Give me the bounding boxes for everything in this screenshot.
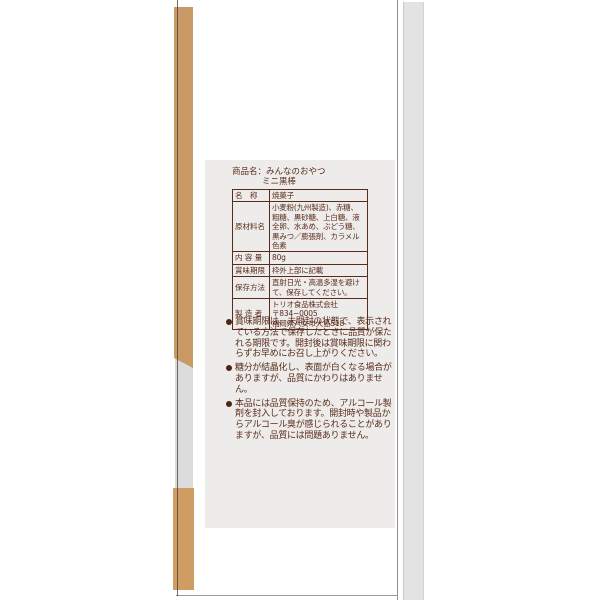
row-value: 焼菓子	[270, 190, 367, 201]
row-label: 内 容 量	[233, 252, 270, 263]
package-bottom-edge-line	[176, 595, 398, 596]
spec-table: 名 称 焼菓子 原材料名 小麦粉(九州製造)、赤糖、粗糖、黒砂糖、上白糖、液全卵…	[232, 189, 368, 330]
row-label: 保存方法	[233, 277, 270, 298]
product-name-line2: ミニ黒棒	[262, 177, 326, 187]
product-name-label: 商品名：	[232, 167, 266, 177]
row-value: 80g	[270, 252, 367, 263]
package-right-edge-line	[397, 0, 398, 600]
package-right-gusset-strip	[403, 2, 424, 600]
note-item-crystallization: 糖分が結晶化し、表面が白くなる場合がありますが、品質にかわりはありません。	[226, 363, 394, 395]
row-value: 枠外上部に記載	[270, 265, 367, 276]
back-label-panel: 商品名：みんなのおやつ ミニ黒棒 名 称 焼菓子 原材料名 小麦粉(九州製造)、…	[205, 160, 395, 528]
product-photo: 商品名：みんなのおやつ ミニ黒棒 名 称 焼菓子 原材料名 小麦粉(九州製造)、…	[0, 0, 600, 600]
package-left-edge-line	[177, 0, 178, 596]
note-item-alcohol: 本品には品質保持のため、アルコール製剤を封入しております。開封時や製品からアルコ…	[226, 399, 394, 442]
note-text: 糖分が結晶化し、表面が白くなる場合がありますが、品質にかわりはありません。	[235, 363, 394, 395]
table-row-storage: 保存方法 直射日光・高温多湿を避けて、保存してください。	[233, 276, 367, 298]
notes-list: 賞味期限は、未開封の状態で、表示されている方法で保存したときに品質が保たれる期限…	[226, 317, 394, 442]
note-text: 賞味期限は、未開封の状態で、表示されている方法で保存したときに品質が保たれる期限…	[235, 317, 394, 360]
row-label: 名 称	[233, 190, 270, 201]
product-name-line1: みんなのおやつ	[266, 167, 326, 177]
note-item-best-before: 賞味期限は、未開封の状態で、表示されている方法で保存したときに品質が保たれる期限…	[226, 317, 394, 360]
row-label: 賞味期限	[233, 265, 270, 276]
bullet-icon	[226, 401, 232, 407]
table-row-ingredients: 原材料名 小麦粉(九州製造)、赤糖、粗糖、黒砂糖、上白糖、液全卵、水あめ、ぶどう…	[233, 201, 367, 251]
row-label: 原材料名	[233, 202, 270, 251]
row-value: 直射日光・高温多湿を避けて、保存してください。	[270, 277, 367, 298]
note-text: 本品には品質保持のため、アルコール製剤を封入しております。開封時や製品からアルコ…	[235, 399, 394, 442]
product-name-block: 商品名：みんなのおやつ ミニ黒棒	[232, 167, 326, 187]
table-row-best-before: 賞味期限 枠外上部に記載	[233, 264, 367, 276]
bullet-icon	[226, 319, 232, 325]
table-row-net-content: 内 容 量 80g	[233, 251, 367, 263]
table-row-name: 名 称 焼菓子	[233, 190, 367, 201]
row-value: 小麦粉(九州製造)、赤糖、粗糖、黒砂糖、上白糖、液全卵、水あめ、ぶどう糖、黒みつ…	[270, 202, 367, 251]
bullet-icon	[226, 365, 232, 371]
